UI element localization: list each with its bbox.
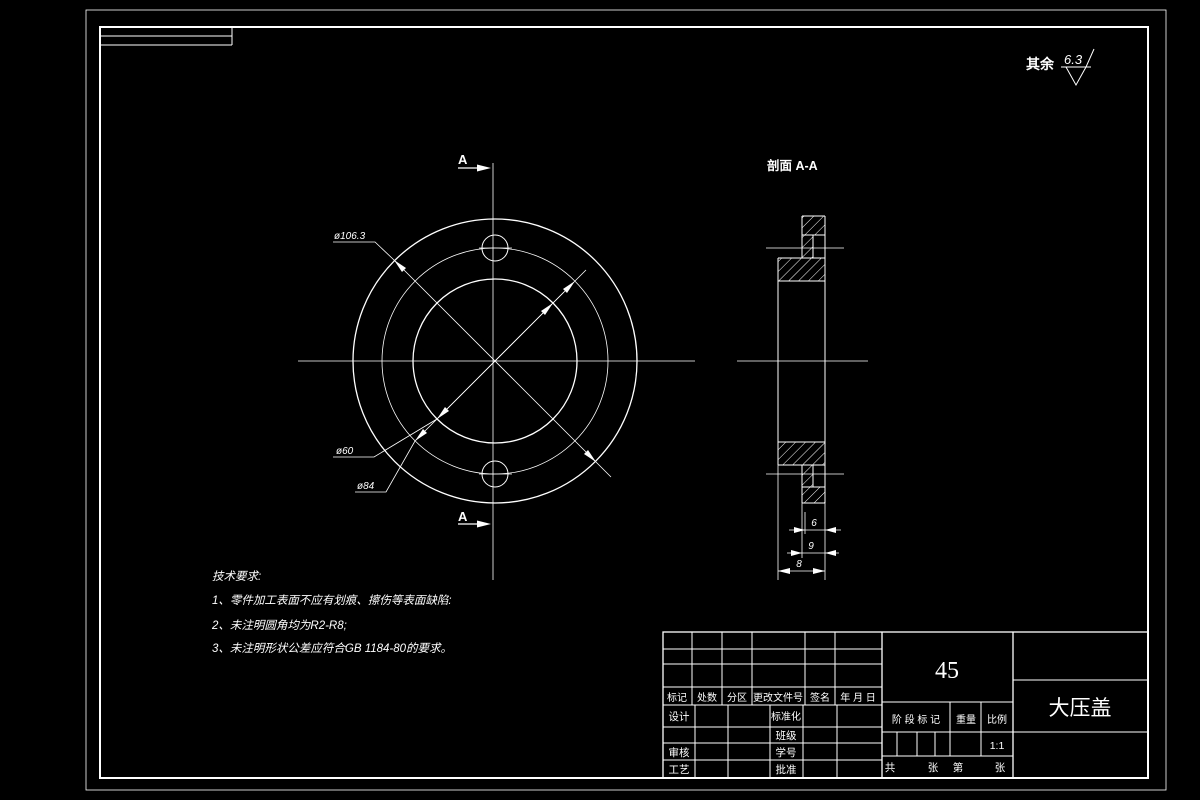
cut-label-bottom: A	[458, 509, 468, 524]
approve-label: 批准	[776, 763, 797, 776]
scale-value: 1:1	[990, 740, 1005, 752]
section-hatch	[778, 258, 825, 281]
design-label: 设计	[669, 710, 690, 723]
cut-arrow-icon	[477, 165, 491, 172]
dim-plate-thickness[interactable]: 9	[787, 541, 839, 556]
part-name: 大压盖	[1049, 697, 1112, 720]
sheets-unit-label: 张	[928, 762, 939, 774]
sheet-edge-rect	[86, 10, 1166, 790]
header-date-label: 年 月 日	[840, 691, 876, 704]
weight-label: 重量	[956, 713, 976, 726]
section-hatch	[802, 465, 813, 487]
tech-requirement-item: 1、零件加工表面不应有划痕、擦伤等表面缺陷:	[212, 594, 452, 607]
header-signature-label: 签名	[810, 691, 830, 704]
standardization-label: 标准化	[771, 710, 801, 723]
dim-arrowhead	[813, 568, 825, 574]
dim-leader-line	[333, 242, 611, 477]
section-cut-marker-bottom: A	[458, 509, 491, 528]
cad-drawing-canvas[interactable]: 其余 6.3 ø106.3 ø60	[0, 0, 1200, 800]
sheets-index-label: 第	[953, 761, 964, 774]
dim-outer-dia-label[interactable]: ø106.3	[334, 231, 366, 242]
header-count-label: 处数	[697, 691, 717, 704]
cut-arrow-icon	[477, 521, 491, 528]
tech-requirements-title: 技术要求:	[212, 570, 261, 583]
section-cut-marker-top: A	[458, 152, 491, 172]
section-hatch	[802, 216, 825, 235]
dim-bore-diameter[interactable]: ø60	[333, 292, 564, 457]
tech-requirement-item: 3、未注明形状公差应符合GB 1184-80的要求。	[212, 642, 452, 655]
surface-roughness-note: 其余 6.3	[1026, 49, 1094, 85]
dim-total-thickness[interactable]: 8	[778, 559, 825, 574]
sheets-unit-label: 张	[995, 762, 1006, 774]
dim-boss-thickness-label[interactable]: 6	[811, 518, 817, 529]
dim-total-thickness-label[interactable]: 8	[796, 559, 802, 570]
header-mark-label: 标记	[667, 692, 687, 704]
dim-arrowhead	[825, 550, 836, 556]
roughness-prefix-label: 其余	[1026, 56, 1055, 72]
dim-arrowhead	[778, 568, 790, 574]
process-label: 工艺	[669, 764, 690, 776]
dim-bore-dia-label[interactable]: ø60	[336, 446, 354, 457]
signature-grid: 设计 审核 工艺 标准化 班级 学号 批准	[663, 705, 882, 778]
revision-grid: 标记 处数 分区 更改文件号 签名 年 月 日	[663, 632, 882, 705]
sheets-total-label: 共	[885, 762, 896, 774]
dim-boss-thickness[interactable]: 6	[789, 518, 841, 533]
header-zone-label: 分区	[727, 692, 747, 704]
header-change-file-label: 更改文件号	[753, 691, 803, 704]
section-hatch	[778, 442, 825, 465]
dim-arrowhead	[794, 527, 805, 533]
dim-bolt-circle-label[interactable]: ø84	[357, 481, 375, 492]
part-name-block: 大压盖	[1013, 680, 1148, 720]
stage-mark-label: 阶 段 标 记	[892, 713, 940, 726]
front-view[interactable]: ø106.3 ø60 ø84 A A	[298, 152, 695, 580]
section-hatch	[802, 487, 825, 503]
sheet-outer-border	[86, 10, 1166, 790]
check-label: 审核	[669, 746, 690, 759]
roughness-value-label: 6.3	[1064, 52, 1083, 67]
material-label: 45	[935, 658, 959, 684]
technical-requirements: 技术要求: 1、零件加工表面不应有划痕、擦伤等表面缺陷: 2、未注明圆角均为R2…	[211, 570, 452, 655]
scale-label: 比例	[987, 713, 1007, 726]
dim-arrowhead	[791, 550, 802, 556]
student-no-label: 学号	[776, 746, 797, 759]
section-hatch	[802, 235, 813, 258]
cut-label-top: A	[458, 152, 468, 167]
dim-arrowhead	[825, 527, 836, 533]
class-label: 班级	[776, 730, 797, 742]
dim-plate-thickness-label[interactable]: 9	[808, 541, 814, 552]
dim-leader-line	[333, 292, 564, 457]
section-view[interactable]: 剖面 A-A	[737, 158, 868, 580]
tech-requirement-item: 2、未注明圆角均为R2-R8;	[211, 619, 347, 632]
drawing-frame-rect	[100, 27, 1148, 778]
section-view-title: 剖面 A-A	[767, 158, 818, 173]
title-block: 标记 处数 分区 更改文件号 签名 年 月 日 设计 审核 工艺 标准化 班级 …	[663, 632, 1148, 778]
